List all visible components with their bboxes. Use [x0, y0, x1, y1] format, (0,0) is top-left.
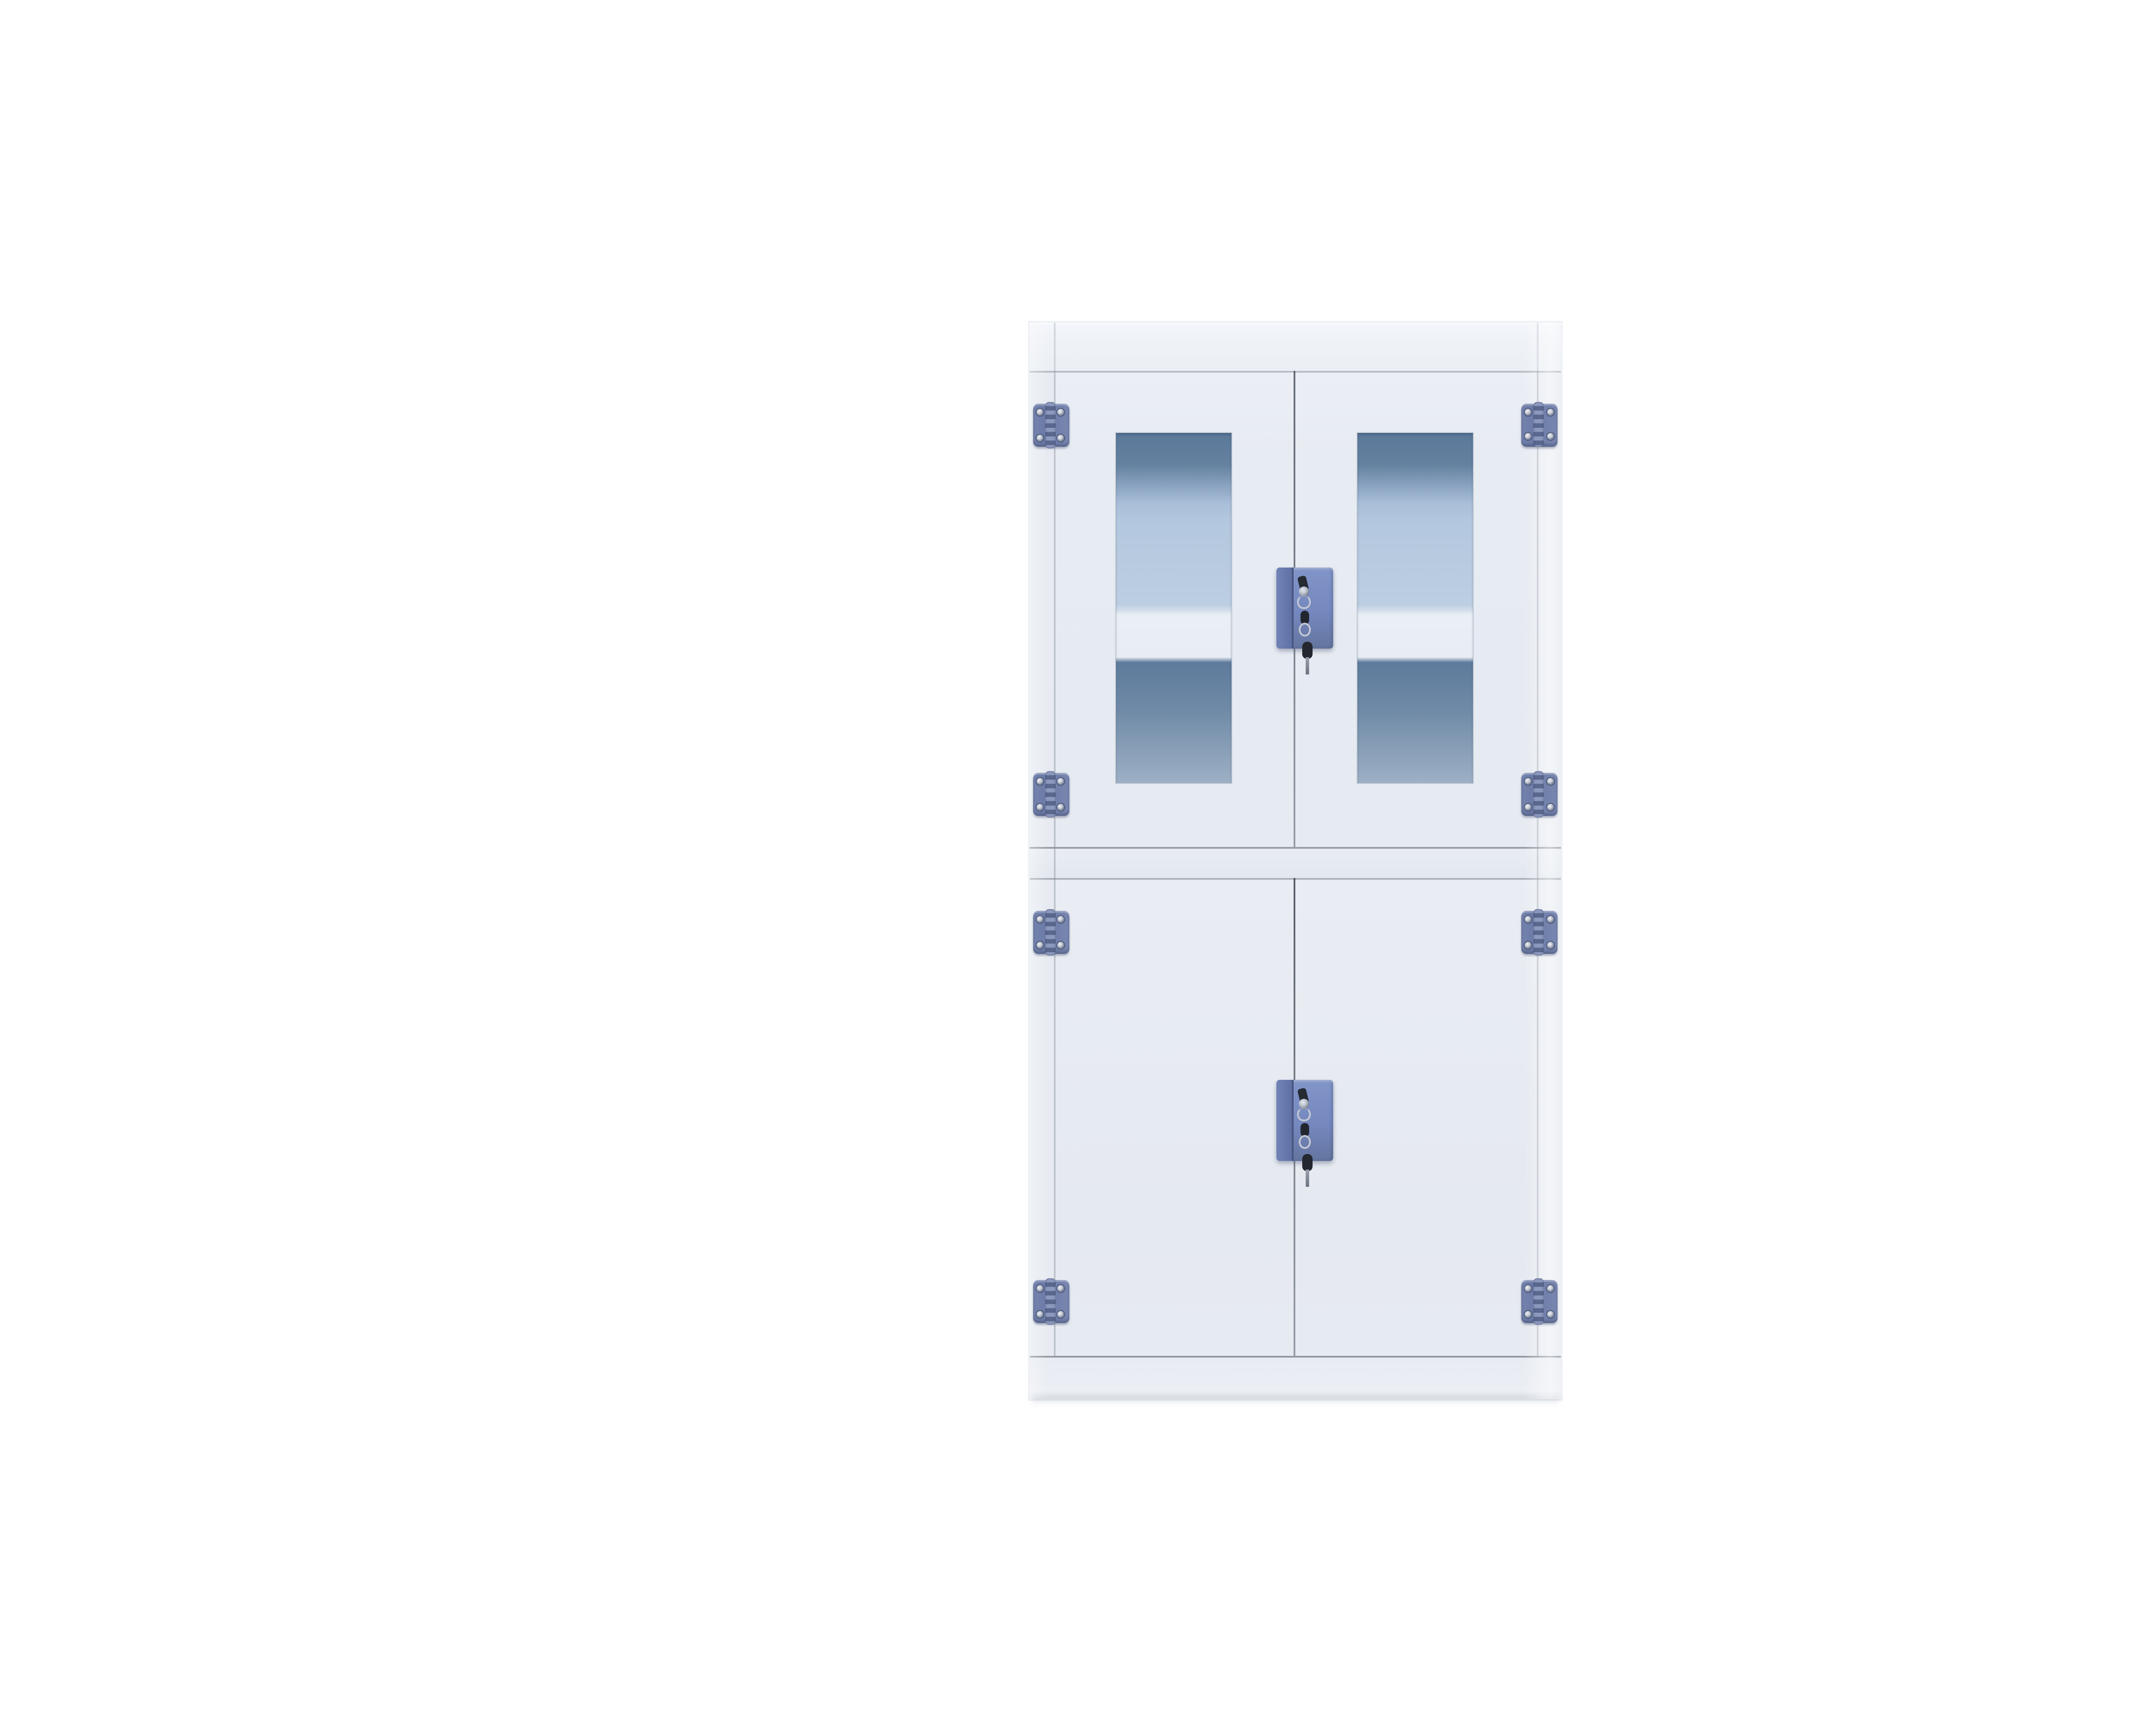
screw-icon: [1526, 803, 1532, 810]
hinge-upper-left-bottom: [1032, 773, 1069, 816]
cam-lock-upper: [1276, 568, 1333, 649]
screw-icon: [1057, 409, 1064, 416]
lid-seam-right: [1536, 323, 1538, 371]
hinge-lower-right-bottom: [1521, 1280, 1557, 1323]
screw-icon: [1546, 1286, 1553, 1292]
screw-icon: [1037, 1286, 1044, 1292]
hinge-lower-left-bottom: [1032, 1280, 1069, 1323]
frame-seam-left: [1054, 371, 1056, 1355]
screw-icon: [1057, 1286, 1064, 1292]
key-ring-icon: [1298, 1134, 1310, 1148]
hinge-upper-right-top: [1521, 403, 1557, 446]
screw-icon: [1546, 433, 1553, 440]
frame-seam-right: [1536, 371, 1538, 1355]
middle-rail: [1030, 847, 1561, 878]
cabinet-top-lid: [1030, 323, 1561, 371]
hanging-key-shaft: [1306, 657, 1309, 674]
lab-cabinet: [1030, 323, 1561, 1399]
screw-icon: [1526, 941, 1532, 948]
hinge-upper-right-bottom: [1521, 773, 1557, 816]
screw-icon: [1037, 778, 1044, 785]
screw-icon: [1546, 1310, 1553, 1317]
keyhole-icon: [1300, 1123, 1309, 1136]
keyhole-icon: [1300, 611, 1309, 624]
lid-seam-left: [1054, 323, 1056, 371]
cam-lock-lower: [1276, 1080, 1333, 1161]
screw-icon: [1526, 916, 1532, 923]
hinge-lower-left-top: [1032, 911, 1069, 954]
screw-icon: [1057, 1310, 1064, 1317]
panel-seam-upper-door-bottom: [1030, 847, 1561, 849]
screw-icon: [1526, 433, 1532, 440]
hanging-key-icon: [1302, 1154, 1312, 1170]
glass-window-right: [1357, 433, 1473, 783]
panel-seam-lower-door-bottom: [1030, 1355, 1561, 1357]
screw-icon: [1526, 1310, 1532, 1317]
screw-icon: [1526, 1286, 1532, 1292]
screw-icon: [1037, 941, 1044, 948]
screw-icon: [1057, 434, 1064, 441]
lock-flap: [1276, 568, 1293, 649]
screw-icon: [1037, 916, 1044, 923]
screw-icon: [1546, 408, 1553, 415]
screw-icon: [1546, 916, 1553, 923]
screw-icon: [1057, 778, 1064, 785]
screw-icon: [1526, 778, 1532, 785]
kick-panel: [1030, 1355, 1561, 1399]
hanging-key-shaft: [1306, 1170, 1309, 1187]
product-photo: B 来宝商城 www.lab360.cn: [0, 0, 2156, 1725]
screw-icon: [1546, 778, 1553, 785]
screw-icon: [1037, 409, 1044, 416]
screw-icon: [1546, 803, 1553, 810]
screw-icon: [1057, 916, 1064, 923]
screw-icon: [1037, 434, 1044, 441]
lower-left-door: [1054, 878, 1294, 1355]
screw-icon: [1546, 941, 1553, 948]
screw-icon: [1037, 803, 1044, 810]
hinge-upper-left-top: [1032, 404, 1069, 447]
screw-icon: [1057, 941, 1064, 948]
lock-flap: [1276, 1080, 1293, 1161]
screw-icon: [1526, 408, 1532, 415]
screw-icon: [1057, 803, 1064, 810]
key-ring-icon: [1297, 594, 1310, 609]
glass-window-left: [1116, 433, 1232, 783]
key-ring-icon: [1297, 1107, 1310, 1121]
key-ring-icon: [1298, 622, 1310, 636]
screw-icon: [1037, 1310, 1044, 1317]
hanging-key-icon: [1302, 642, 1312, 658]
hinge-lower-right-top: [1521, 911, 1557, 954]
